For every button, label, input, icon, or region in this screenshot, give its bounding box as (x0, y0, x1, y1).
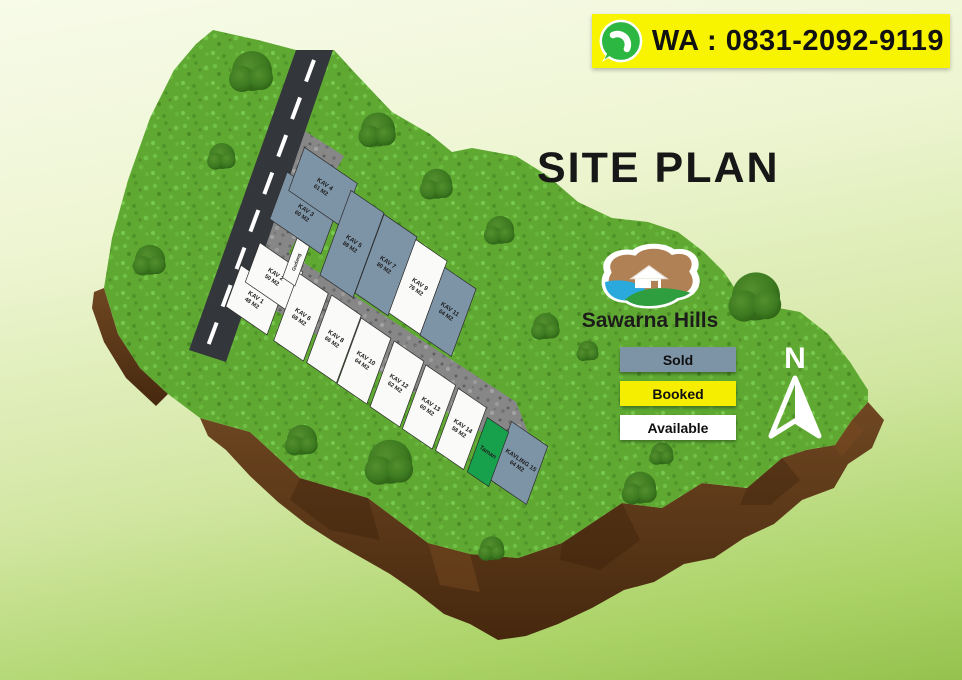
brand-name: Sawarna Hills (575, 309, 725, 333)
whatsapp-banner: WA : 0831-2092-9119 (592, 14, 950, 68)
legend-booked-label: Booked (652, 386, 703, 402)
legend-sold-label: Sold (663, 352, 693, 368)
whatsapp-number: WA : 0831-2092-9119 (652, 25, 944, 58)
legend: Sold Booked Available (620, 347, 738, 449)
legend-available-label: Available (648, 420, 709, 436)
legend-available-chip: Available (620, 415, 736, 440)
site-plan-scene: KAV 148 M2KAV 250 M2KAV 360 M2KAV 461 M2… (0, 0, 962, 680)
legend-booked-chip: Booked (620, 381, 736, 406)
legend-sold-chip: Sold (620, 347, 736, 372)
compass-n-label: N (784, 342, 806, 375)
site-plan-image: KAV 148 M2KAV 250 M2KAV 360 M2KAV 461 M2… (0, 0, 962, 680)
tree (728, 272, 781, 321)
whatsapp-icon (598, 18, 644, 64)
page-title: SITE PLAN (537, 144, 807, 193)
logo-house-door (651, 281, 658, 288)
